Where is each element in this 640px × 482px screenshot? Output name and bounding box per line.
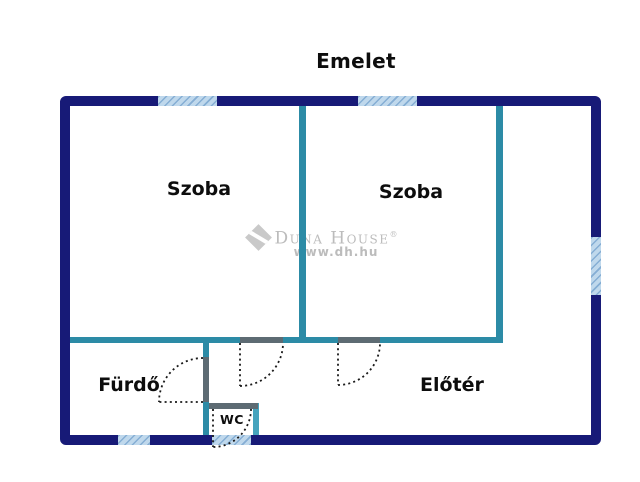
room-label-eloter: Előtér: [392, 374, 512, 396]
room-label-szoba2: Szoba: [351, 181, 471, 203]
registered-mark: ®: [390, 230, 398, 239]
wall-between-szoba2-eloter: [496, 106, 503, 343]
floor-title: Emelet: [250, 48, 462, 74]
door-opening-wc: [209, 403, 258, 409]
room-label-furdo: Fürdő: [69, 374, 189, 396]
door-opening-szoba1: [240, 337, 283, 343]
watermark-url: www.dh.hu: [256, 245, 416, 259]
room-label-wc: WC: [211, 412, 253, 428]
wall-between-szoba1-szoba2: [299, 106, 306, 343]
window-bottom-left: [118, 435, 150, 445]
wall-rooms-hallway: [70, 337, 503, 343]
floor-plan: Emelet Szoba Szoba Fürdő Előtér WC Duna …: [0, 0, 640, 482]
room-label-szoba1: Szoba: [139, 178, 259, 200]
window-top-left: [158, 96, 217, 106]
door-opening-szoba2: [338, 337, 380, 343]
watermark-brand: Duna House®: [256, 224, 416, 246]
window-bottom-wc: [212, 435, 251, 445]
window-right: [591, 237, 601, 295]
door-opening-furdo: [203, 357, 209, 402]
window-top-right: [358, 96, 417, 106]
